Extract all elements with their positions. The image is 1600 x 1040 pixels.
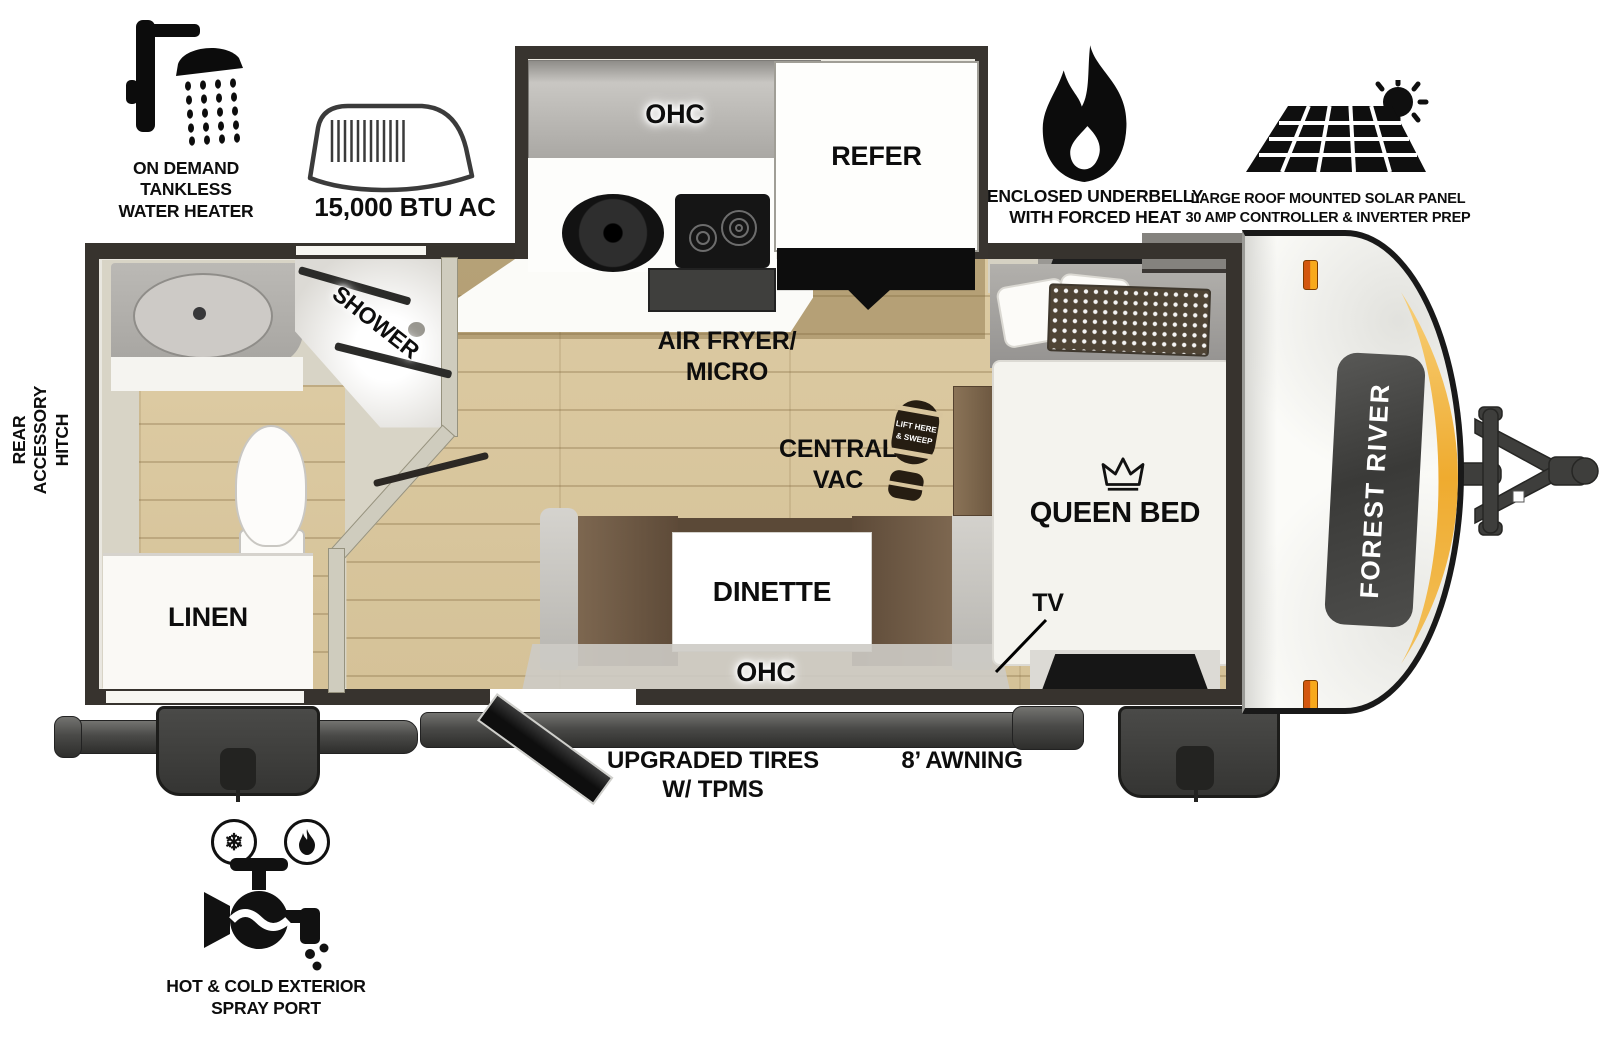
marker-light-bottom [1303, 680, 1318, 710]
solar-label: LARGE ROOF MOUNTED SOLAR PANEL 30 AMP CO… [1180, 190, 1476, 228]
brand-badge: FOREST RIVER [1324, 352, 1426, 628]
bathroom-vanity-front [111, 357, 303, 391]
kitchen-slide: OHC REFER [515, 46, 988, 259]
queen-bed-label: QUEEN BED [1000, 496, 1230, 531]
bathroom-sink-drain [193, 307, 206, 320]
hitch-a-frame [1455, 405, 1600, 540]
awning-tube-end [1012, 706, 1084, 750]
window-linen [106, 691, 304, 703]
linen-label: LINEN [103, 553, 313, 681]
wheel-left [220, 748, 256, 790]
air-fryer-micro-label: AIR FRYER/ MICRO [612, 326, 842, 389]
front-cap: FOREST RIVER [1242, 230, 1464, 714]
bed-bolster-pillow [1047, 283, 1211, 357]
kitchen-sink [562, 194, 664, 272]
wheel-left-stem [236, 788, 240, 802]
upgraded-tires-label: UPGRADED TIRES W/ TPMS [585, 746, 841, 805]
dinette-label: DINETTE [713, 575, 831, 609]
wall-top-right [975, 243, 1243, 259]
ac-label: 15,000 BTU AC [295, 192, 515, 224]
wall-left [85, 243, 99, 705]
dinette-table: DINETTE [672, 532, 872, 652]
shower-head-icon [126, 20, 248, 146]
awning-label: 8’ AWNING [872, 746, 1052, 775]
wheel-right [1176, 746, 1214, 790]
wall-right [1226, 243, 1243, 705]
brand-label: FOREST RIVER [1354, 381, 1396, 598]
water-heater-label: ON DEMAND TANKLESS WATER HEATER [88, 158, 284, 222]
marker-light-top [1303, 260, 1318, 290]
cooktop-burners [675, 194, 770, 268]
wheel-right-stem [1194, 788, 1198, 802]
ac-unit-icon [300, 98, 484, 194]
toilet-bowl [235, 425, 307, 547]
refrigerator: REFER [774, 61, 979, 252]
rear-accessory-hitch-label: REAR ACCESSORY HITCH [9, 358, 75, 522]
solar-panel-icon [1240, 80, 1432, 188]
kitchen-ohc-label: OHC [595, 98, 755, 131]
bath-wall-vertical-top [441, 257, 458, 437]
spray-port-label: HOT & COLD EXTERIOR SPRAY PORT [138, 976, 394, 1020]
bath-wall-vertical-bottom [328, 548, 345, 693]
rear-bumper-end-cap [54, 716, 82, 758]
rv-floorplan-diagram: LINEN DINETTE OHC QUEEN BED TV [0, 0, 1600, 1040]
ohc-lower-label: OHC [736, 656, 795, 689]
window-rear [296, 246, 426, 255]
flame-icon [1026, 44, 1146, 186]
bed-roof-vent-bottom [1042, 654, 1208, 690]
spray-port-faucet-icon [204, 858, 336, 972]
crown-icon [1100, 456, 1146, 494]
cooktop [675, 194, 770, 268]
underbelly-label: ENCLOSED UNDERBELLY WITH FORCED HEAT [975, 186, 1215, 229]
kitchen-drawer [648, 268, 776, 312]
wardrobe-cabinet [953, 386, 997, 516]
dinette-cushion-left [578, 516, 678, 666]
refer-label: REFER [831, 140, 922, 173]
entry-door-opening [490, 689, 636, 705]
